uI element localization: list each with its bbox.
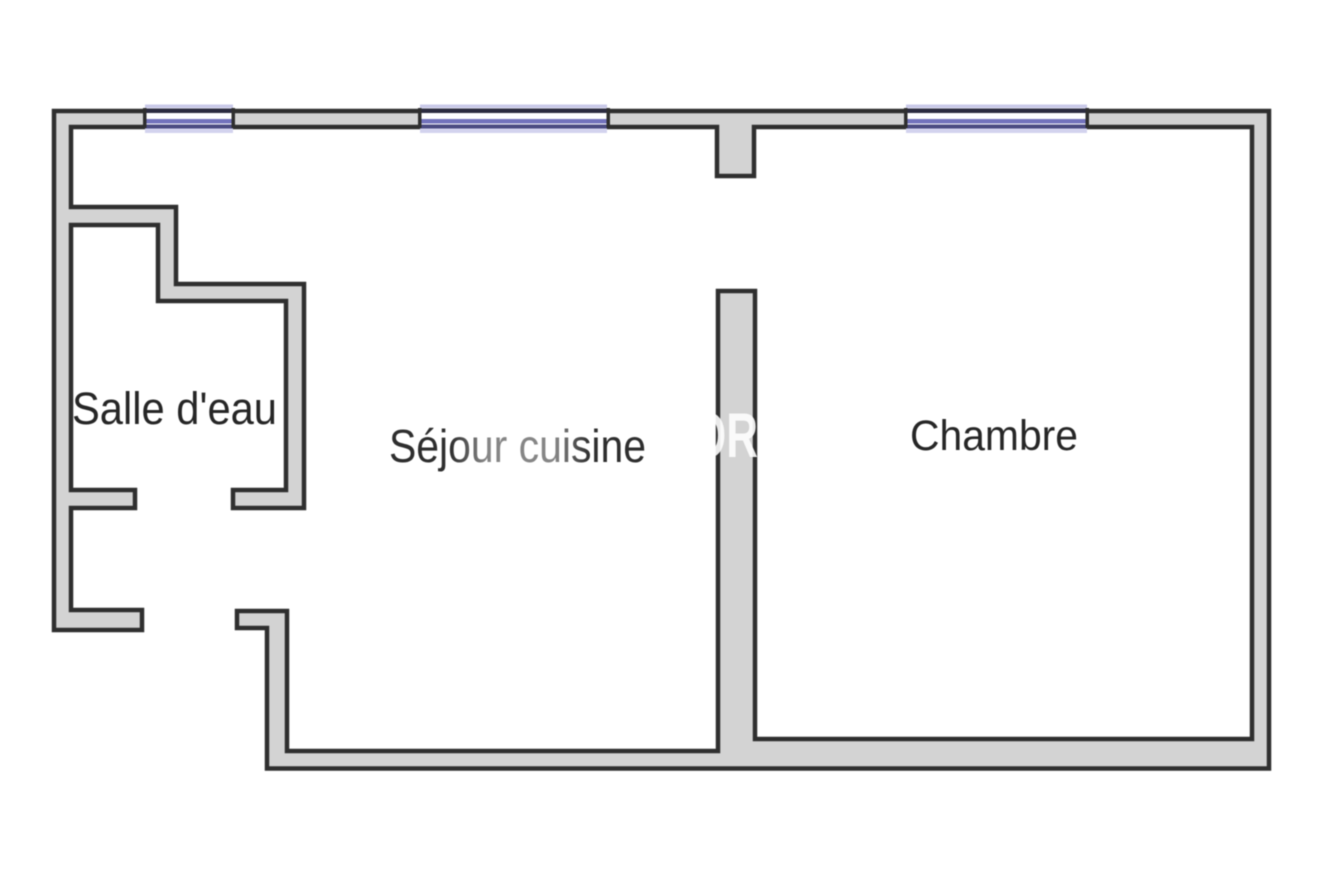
svg-text:OR: OR bbox=[692, 401, 758, 471]
svg-text:Chambre: Chambre bbox=[910, 412, 1078, 460]
svg-text:Salle d'eau: Salle d'eau bbox=[72, 383, 277, 434]
